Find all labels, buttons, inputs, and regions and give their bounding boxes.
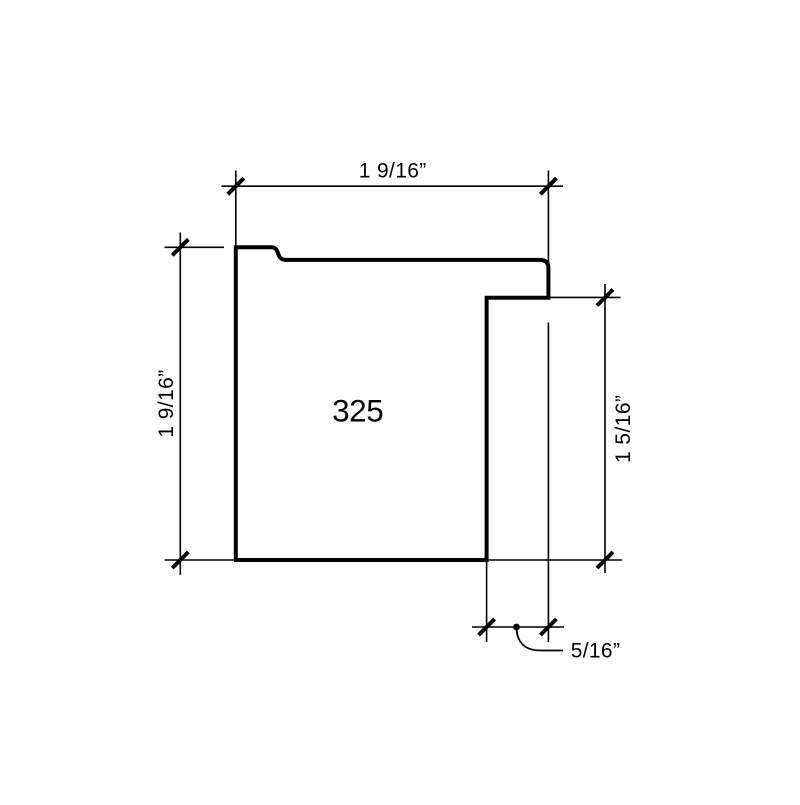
svg-text:325: 325 (332, 393, 383, 429)
svg-text:1 9/16”: 1 9/16” (155, 369, 178, 437)
svg-text:1 9/16”: 1 9/16” (359, 160, 427, 183)
svg-text:1 5/16”: 1 5/16” (612, 395, 635, 463)
svg-text:5/16”: 5/16” (571, 640, 621, 663)
